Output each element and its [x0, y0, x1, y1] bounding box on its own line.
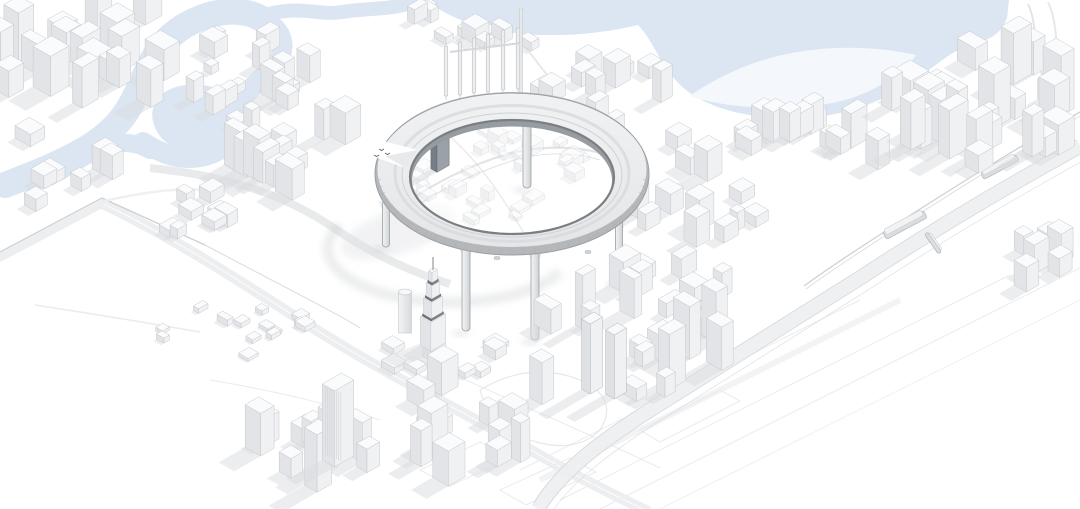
aerial-city-render: [0, 0, 1080, 509]
cylindrical-tower: [399, 289, 412, 333]
city-render-canvas: [0, 0, 1080, 509]
